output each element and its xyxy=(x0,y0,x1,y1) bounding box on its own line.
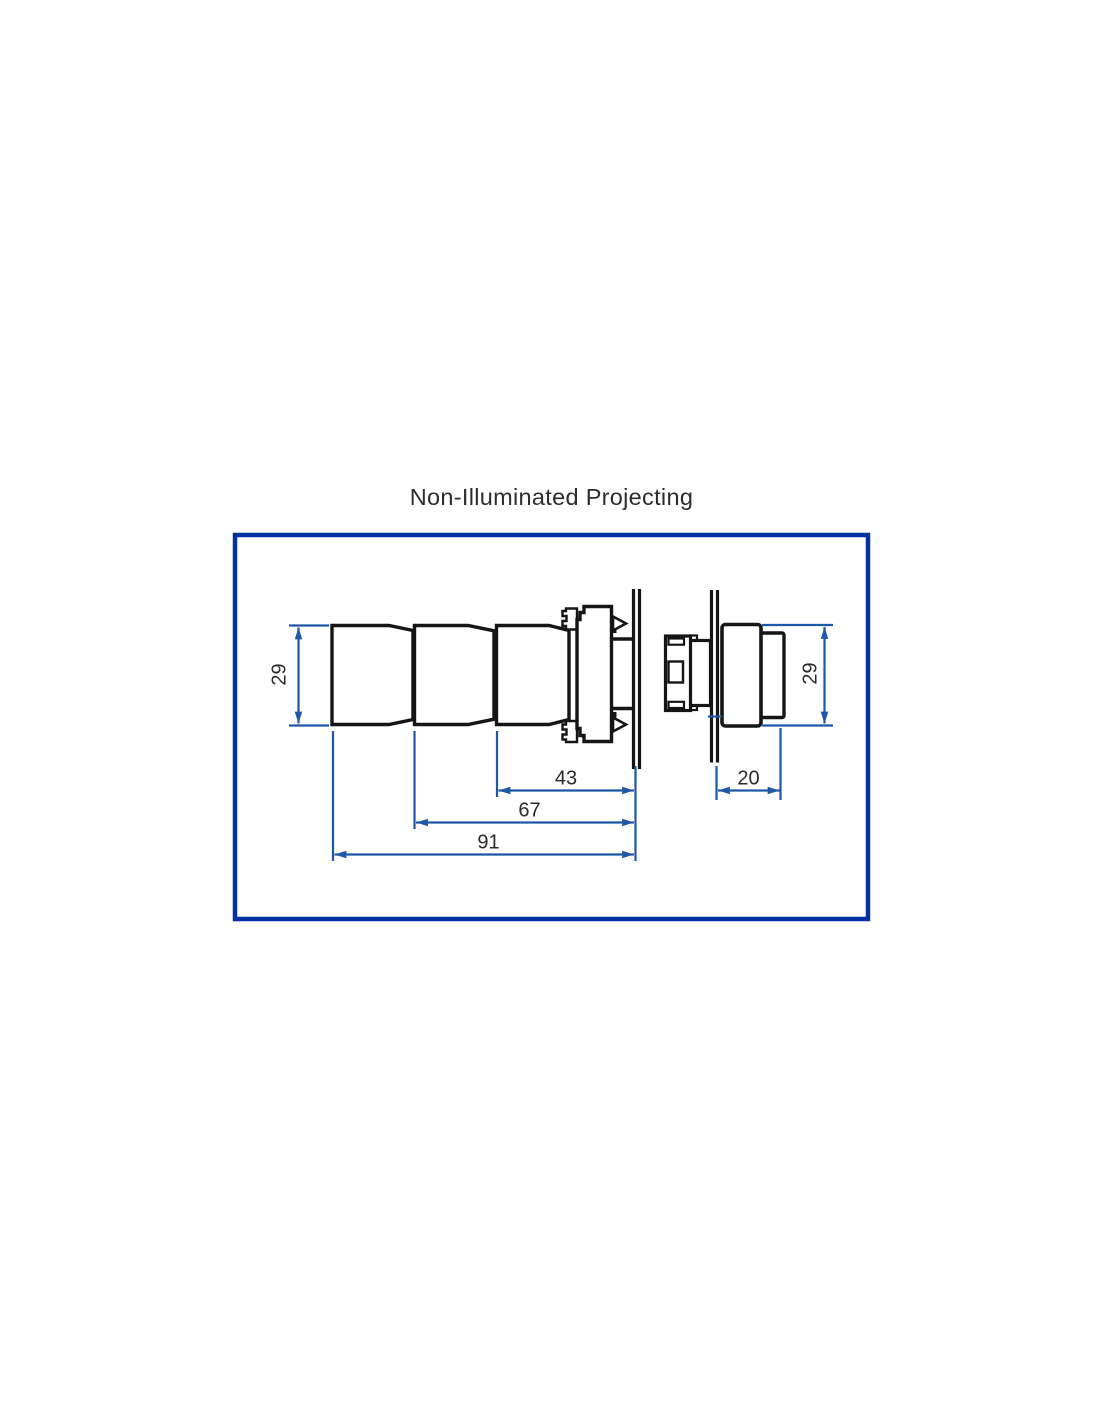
rear-window xyxy=(669,662,684,683)
lock-tab-top xyxy=(613,617,626,631)
diagram-frame xyxy=(235,535,868,919)
dim-label-20: 20 xyxy=(737,768,759,790)
page: Non-Illuminated Projecting xyxy=(0,0,1100,1422)
dim-label-43: 43 xyxy=(555,768,577,790)
dim-label-67: 67 xyxy=(518,800,540,822)
head-section-2 xyxy=(415,626,495,725)
right-view-outline xyxy=(666,625,785,727)
ext-lines-29-left xyxy=(289,626,329,726)
rear-slot-bottom xyxy=(669,702,685,708)
left-panel xyxy=(634,589,640,769)
head-section-3 xyxy=(497,626,570,725)
mounting-bezel xyxy=(577,607,612,742)
panel-lines-left xyxy=(634,589,640,769)
rear-collar xyxy=(690,641,711,706)
lock-tab-bottom xyxy=(613,718,626,732)
left-view-outline xyxy=(332,607,634,743)
mounting-neck xyxy=(612,639,634,709)
right-panel xyxy=(712,590,718,763)
dim-label-29-right: 29 xyxy=(800,662,822,684)
button-cap xyxy=(760,633,784,718)
button-head xyxy=(722,625,761,727)
dim-label-91: 91 xyxy=(477,832,499,854)
head-section-1 xyxy=(332,626,413,725)
rear-slot-top xyxy=(669,639,685,645)
dim-label-29-left: 29 xyxy=(269,663,291,685)
latch-clip-top xyxy=(563,609,578,630)
dimension-drawing: 29 43 67 91 20 29 xyxy=(0,0,1100,1422)
panel-lines-right xyxy=(712,590,718,763)
latch-clip-bottom xyxy=(563,721,578,742)
